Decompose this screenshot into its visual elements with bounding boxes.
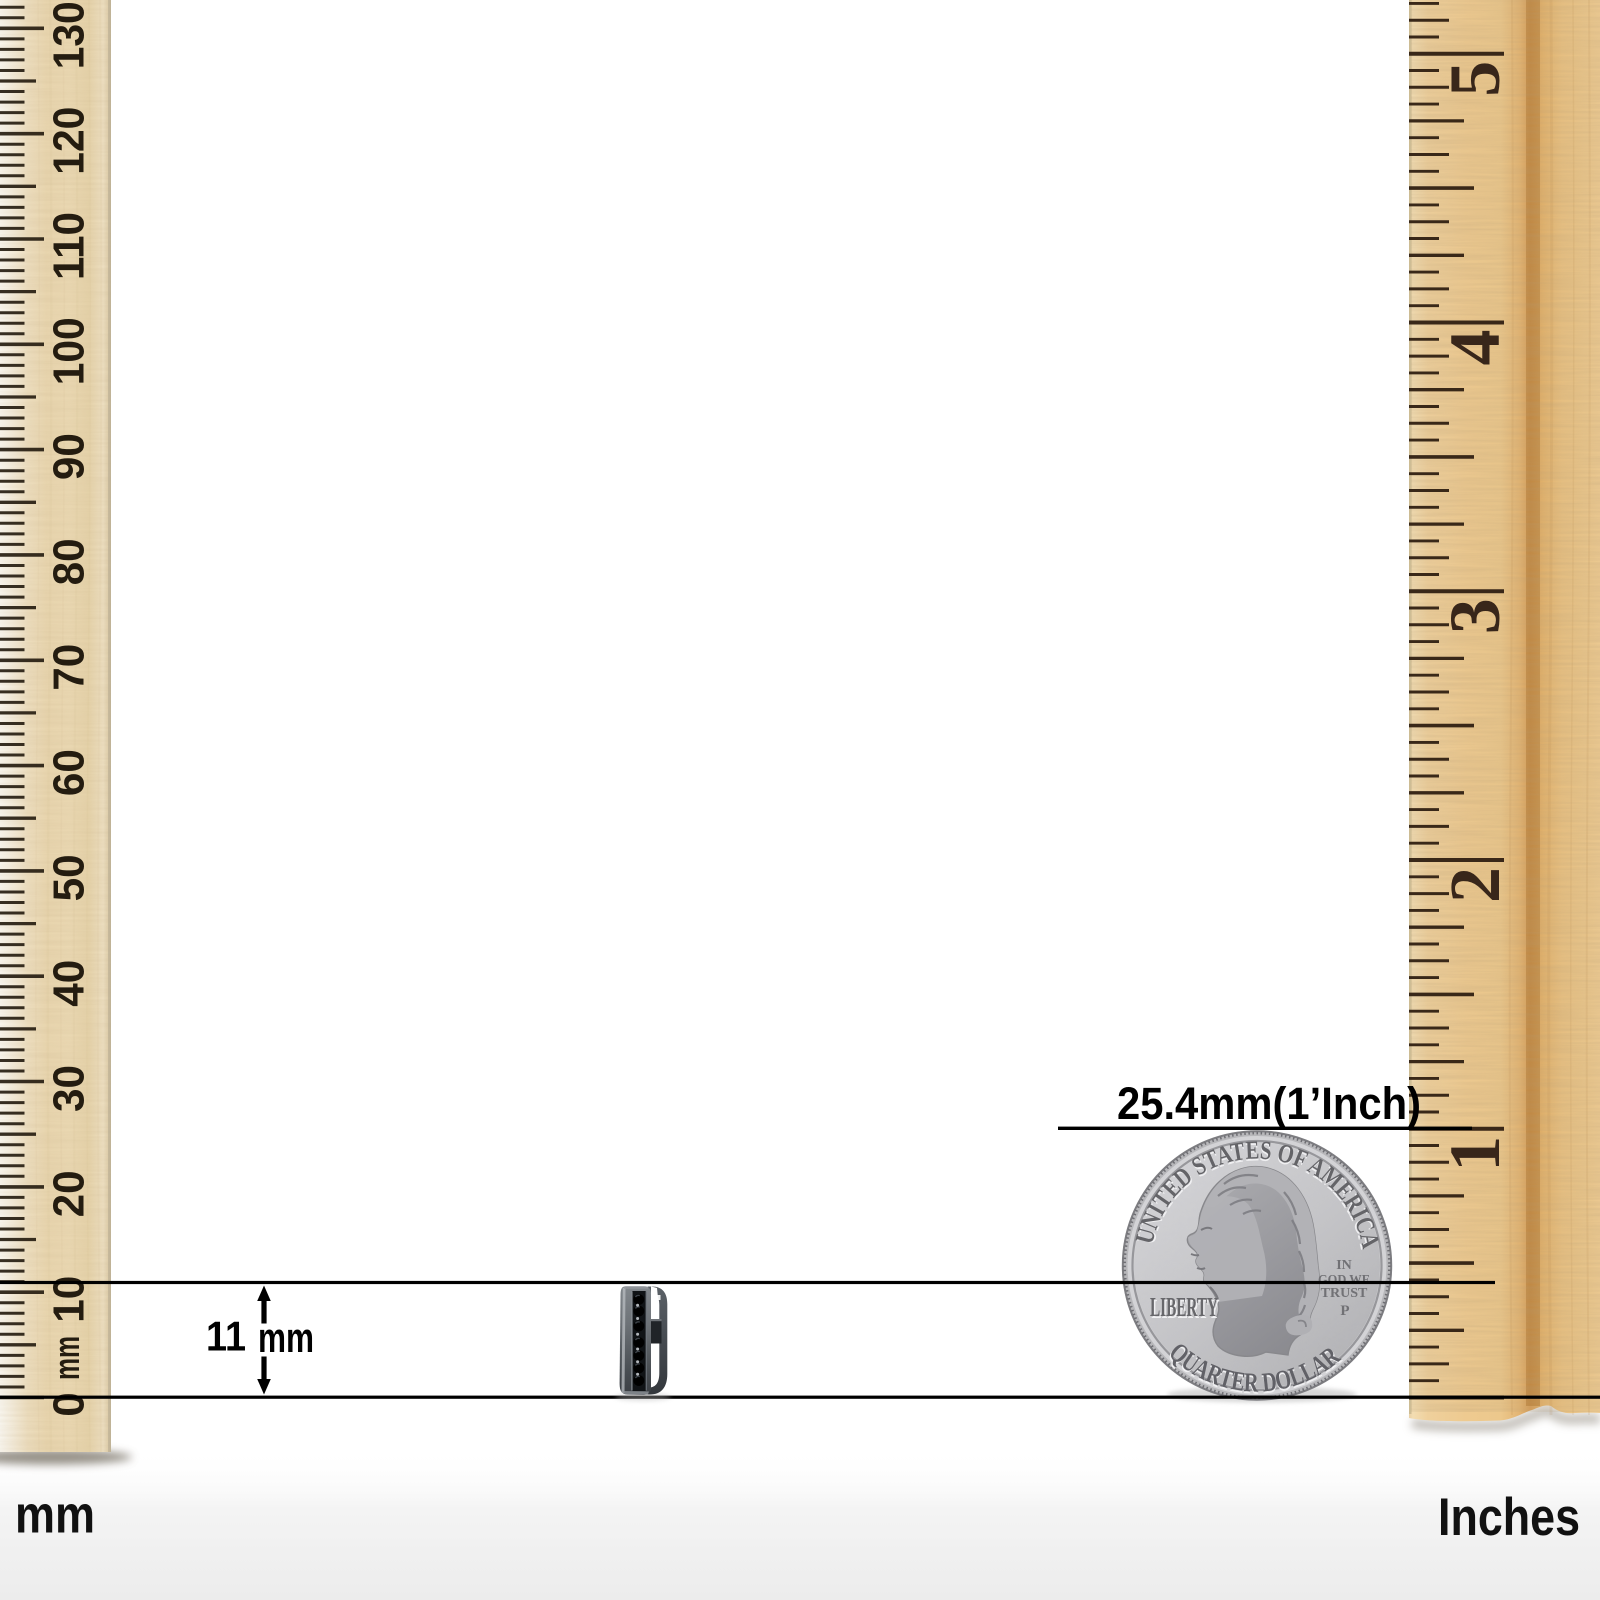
- svg-text:5: 5: [1435, 61, 1515, 97]
- svg-text:70: 70: [45, 644, 94, 691]
- svg-text:130: 130: [45, 1, 94, 69]
- svg-text:3: 3: [1435, 598, 1515, 634]
- svg-text:1: 1: [1435, 1136, 1515, 1172]
- svg-text:P: P: [1340, 1303, 1349, 1319]
- svg-text:20: 20: [45, 1170, 94, 1217]
- svg-text:50: 50: [45, 854, 94, 901]
- svg-text:120: 120: [45, 107, 94, 175]
- svg-text:mm: mm: [46, 1336, 87, 1380]
- svg-text:11: 11: [206, 1313, 246, 1360]
- svg-text:25.4mm(1’Inch): 25.4mm(1’Inch): [1117, 1078, 1421, 1129]
- svg-text:30: 30: [45, 1065, 94, 1112]
- svg-text:2: 2: [1435, 867, 1515, 903]
- svg-text:4: 4: [1435, 330, 1515, 366]
- svg-text:100: 100: [45, 317, 94, 385]
- svg-text:Inches: Inches: [1438, 1488, 1580, 1547]
- svg-text:mm: mm: [15, 1486, 95, 1545]
- svg-text:40: 40: [45, 960, 94, 1007]
- svg-text:110: 110: [45, 212, 94, 280]
- svg-text:TRUST: TRUST: [1321, 1286, 1368, 1301]
- svg-text:90: 90: [45, 433, 94, 480]
- svg-text:80: 80: [45, 538, 94, 585]
- svg-text:60: 60: [45, 749, 94, 796]
- svg-text:LIBERTY: LIBERTY: [1150, 1292, 1218, 1322]
- svg-text:IN: IN: [1336, 1258, 1352, 1273]
